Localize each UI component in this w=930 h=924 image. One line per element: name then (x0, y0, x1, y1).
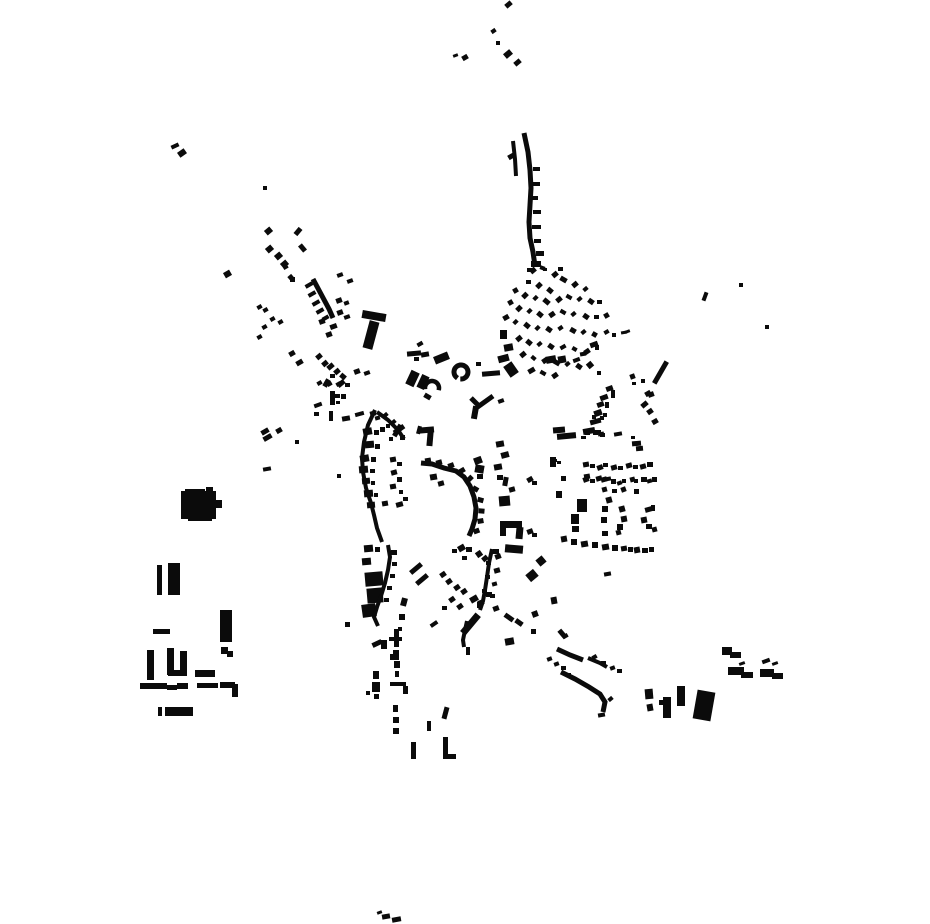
building-footprint (400, 597, 408, 606)
building-footprint (430, 473, 438, 480)
building-footprint (492, 605, 499, 612)
building-footprint (647, 478, 653, 483)
building-footprint (439, 571, 447, 579)
building-footprint (329, 323, 337, 330)
building-footprint (461, 54, 469, 61)
building-footprint (399, 490, 403, 494)
building-footprint (433, 351, 450, 364)
building-footprint (364, 571, 383, 587)
building-footprint (618, 505, 625, 512)
building-footprint (390, 682, 406, 686)
building-footprint (499, 496, 511, 507)
building-footprint (605, 402, 609, 408)
building-footprint (375, 547, 380, 552)
building-footprint (395, 671, 399, 677)
building-footprint (620, 486, 626, 492)
building-footprint (762, 658, 771, 664)
building-footprint (393, 717, 399, 723)
building-footprint (597, 300, 602, 304)
building-footprint (602, 506, 608, 512)
building-footprint (494, 553, 501, 560)
building-footprint (523, 322, 531, 330)
building-footprint (625, 462, 632, 468)
building-footprint (603, 329, 609, 335)
building-footprint (646, 524, 652, 529)
building-footprint (598, 712, 606, 717)
building-footprint (559, 309, 566, 315)
building-footprint (571, 346, 577, 352)
building-footprint (374, 430, 379, 435)
building-footprint (414, 357, 419, 361)
building-footprint (478, 508, 484, 514)
building-footprint (197, 683, 218, 688)
building-footprint (580, 329, 586, 335)
building-footprint (482, 370, 500, 377)
building-footprint (614, 431, 623, 436)
street-row (513, 141, 516, 176)
building-footprint (561, 666, 566, 670)
building-footprint (612, 333, 616, 337)
building-footprint (416, 341, 423, 347)
building-footprint (493, 549, 499, 554)
building-footprint (452, 549, 457, 553)
building-footprint (536, 251, 544, 256)
building-footprint (315, 353, 323, 361)
building-footprint (392, 916, 402, 922)
building-footprint (295, 440, 299, 444)
building-footprint (534, 325, 540, 331)
building-footprint (188, 517, 212, 521)
building-footprint (474, 464, 484, 473)
building-footprint (634, 547, 641, 554)
building-footprint (542, 297, 551, 305)
building-footprint (380, 427, 385, 432)
building-footprint (651, 505, 655, 511)
building-footprint (651, 418, 659, 425)
building-footprint (548, 311, 556, 319)
building-footprint (256, 304, 262, 310)
building-footprint (545, 326, 553, 334)
building-footprint (609, 665, 615, 670)
building-footprint (497, 398, 504, 404)
building-footprint (371, 481, 375, 485)
building-footprint (256, 334, 262, 340)
building-footprint (607, 696, 613, 702)
building-footprint (437, 480, 444, 486)
building-footprint (409, 562, 423, 575)
building-footprint (365, 441, 375, 449)
building-footprint (262, 307, 268, 313)
building-footprint (553, 426, 565, 433)
building-footprint (616, 480, 622, 485)
building-footprint (342, 415, 351, 421)
building-footprint (632, 382, 636, 385)
building-footprint (371, 639, 382, 648)
building-footprint (561, 536, 568, 543)
building-footprint (447, 754, 456, 759)
building-footprint (330, 391, 335, 405)
building-footprint (512, 319, 518, 325)
building-footprint (595, 345, 599, 350)
building-footprint (611, 390, 615, 398)
building-footprint (395, 501, 403, 508)
building-footprint (493, 567, 500, 573)
building-footprint (153, 629, 170, 634)
building-footprint (557, 355, 566, 363)
building-footprint (500, 330, 507, 339)
building-footprint (649, 547, 654, 552)
building-footprint (277, 319, 283, 325)
map-canvas (0, 0, 930, 924)
building-footprint (157, 565, 162, 595)
building-footprint (502, 477, 508, 487)
arc-building (425, 381, 439, 390)
building-footprint (633, 465, 638, 469)
building-footprint (625, 329, 631, 334)
building-footprint (576, 296, 582, 302)
building-footprint (582, 313, 590, 321)
building-footprint (533, 167, 540, 171)
building-footprint (663, 697, 671, 718)
building-footprint (546, 656, 552, 661)
building-footprint (374, 694, 379, 699)
building-footprint (355, 411, 365, 417)
building-footprint (640, 400, 649, 408)
building-footprint (462, 556, 467, 560)
building-footprint (325, 331, 332, 338)
building-footprint (269, 316, 275, 322)
building-footprint (553, 459, 557, 462)
building-footprint (561, 476, 566, 481)
building-footprint (591, 331, 598, 338)
building-footprint (621, 516, 628, 523)
building-footprint (503, 343, 513, 351)
building-footprint (587, 298, 595, 306)
building-footprint (559, 276, 568, 284)
building-footprint (504, 0, 513, 8)
building-footprint (765, 325, 769, 329)
building-footprint (448, 596, 456, 604)
building-footprint (641, 379, 645, 383)
building-footprint (503, 49, 513, 59)
building-footprint (615, 529, 621, 535)
building-footprint (263, 186, 267, 190)
building-footprint (181, 491, 216, 519)
building-footprint (288, 350, 296, 357)
building-footprint (423, 393, 432, 401)
figure-ground-map (0, 0, 930, 924)
building-footprint (466, 647, 470, 651)
building-footprint (316, 380, 322, 386)
building-footprint (167, 685, 177, 690)
building-footprint (651, 526, 657, 532)
building-footprint (345, 383, 350, 387)
building-footprint (636, 446, 643, 452)
building-footprint (590, 479, 595, 483)
building-footprint (618, 466, 623, 470)
building-footprint (546, 287, 554, 295)
building-footprint (760, 669, 774, 677)
building-footprint (336, 272, 343, 278)
building-footprint (533, 182, 540, 186)
building-footprint (503, 361, 519, 377)
building-footprint (631, 436, 635, 439)
building-footprint (641, 477, 647, 482)
building-footprint (507, 299, 514, 306)
building-footprint (261, 324, 267, 330)
building-footprint (772, 661, 779, 666)
building-footprint (593, 430, 598, 435)
building-footprint (547, 343, 555, 351)
building-footprint (384, 598, 389, 602)
building-footprint (583, 462, 590, 468)
building-footprint (274, 251, 283, 260)
building-footprint (730, 652, 741, 658)
building-footprint (557, 325, 563, 331)
arc-building (454, 365, 468, 379)
building-footprint (393, 650, 399, 658)
building-footprint (526, 308, 532, 314)
building-footprint (335, 394, 340, 398)
building-footprint (582, 286, 588, 292)
building-footprint (534, 239, 541, 243)
building-footprint (466, 651, 470, 655)
building-footprint (553, 661, 559, 666)
building-footprint (371, 457, 376, 462)
building-footprint (220, 610, 232, 642)
building-footprint (147, 650, 154, 680)
building-footprint (363, 320, 380, 350)
building-footprint (477, 518, 484, 524)
building-footprint (497, 475, 503, 480)
building-footprint (581, 436, 586, 439)
building-footprint (374, 493, 378, 497)
building-footprint (370, 469, 375, 473)
building-footprint (550, 597, 557, 605)
building-footprint (519, 351, 527, 359)
building-footprint (456, 603, 464, 611)
building-footprint (531, 629, 536, 634)
building-footprint (403, 497, 408, 501)
building-footprint (652, 360, 669, 384)
building-footprint (382, 913, 391, 919)
building-footprint (421, 351, 430, 357)
building-footprint (505, 544, 524, 554)
building-footprint (600, 433, 605, 437)
building-footprint (372, 682, 380, 692)
building-footprint (382, 501, 389, 507)
building-footprint (389, 637, 402, 641)
building-footprint (206, 487, 213, 493)
building-footprint (490, 28, 496, 34)
building-footprint (536, 341, 542, 347)
building-footprint (390, 574, 395, 578)
building-footprint (263, 466, 272, 471)
building-footprint (610, 464, 617, 470)
building-footprint (646, 704, 653, 712)
building-footprint (601, 517, 607, 523)
building-footprint (533, 210, 541, 214)
building-footprint (647, 462, 653, 467)
building-footprint (195, 670, 215, 677)
building-footprint (298, 243, 307, 252)
building-footprint (602, 531, 608, 536)
building-footprint (394, 661, 400, 668)
building-footprint (290, 277, 295, 282)
building-footprint (473, 456, 483, 465)
building-footprint (415, 573, 429, 586)
building-footprint (215, 500, 222, 508)
building-footprint (486, 592, 492, 597)
building-footprint (381, 640, 387, 649)
street-row (557, 649, 583, 660)
building-footprint (581, 540, 589, 547)
building-footprint (346, 278, 353, 284)
building-footprint (442, 606, 447, 610)
building-footprint (337, 474, 341, 478)
building-footprint (336, 309, 343, 316)
building-footprint (497, 354, 509, 364)
building-footprint (532, 225, 541, 229)
building-footprint (577, 499, 587, 512)
building-footprint (539, 370, 546, 376)
building-footprint (536, 311, 544, 319)
building-footprint (427, 721, 431, 731)
building-footprint (512, 287, 519, 294)
building-footprint (617, 524, 623, 530)
building-footprint (659, 700, 664, 705)
building-footprint (596, 464, 603, 471)
building-footprint (392, 562, 397, 566)
building-footprint (596, 401, 604, 408)
building-footprint (502, 314, 510, 321)
building-footprint (612, 489, 617, 493)
building-footprint (397, 462, 402, 466)
building-footprint (364, 545, 374, 553)
building-footprint (330, 374, 335, 378)
building-footprint (363, 370, 370, 376)
building-footprint (477, 474, 483, 479)
building-footprint (475, 550, 483, 558)
building-footprint (677, 686, 685, 706)
building-footprint (390, 484, 397, 490)
building-footprint (565, 294, 572, 300)
building-footprint (314, 402, 323, 408)
building-footprint (604, 571, 612, 576)
building-footprint (513, 58, 522, 66)
building-footprint (634, 479, 638, 483)
building-footprint (652, 477, 657, 482)
building-footprint (603, 312, 610, 319)
building-footprint (177, 148, 187, 158)
street-row (421, 463, 476, 536)
building-footprint (308, 290, 317, 297)
building-footprint (558, 267, 563, 271)
building-footprint (500, 528, 506, 536)
building-footprint (530, 355, 536, 361)
building-footprint (399, 614, 405, 620)
building-footprint (527, 367, 536, 375)
building-footprint (494, 463, 503, 470)
building-footprint (532, 481, 537, 485)
building-footprint (586, 361, 594, 369)
building-footprint (611, 479, 616, 484)
building-footprint (398, 627, 402, 631)
building-footprint (393, 728, 399, 734)
building-footprint (316, 307, 325, 314)
building-footprint (602, 543, 610, 550)
building-footprint (514, 618, 523, 627)
building-footprint (335, 297, 342, 304)
building-footprint (622, 479, 626, 483)
building-footprint (445, 578, 453, 586)
building-footprint (532, 295, 538, 301)
building-footprint (345, 622, 350, 627)
building-footprint (772, 673, 783, 679)
building-footprint (329, 411, 333, 421)
building-footprint (343, 314, 350, 320)
building-footprint (223, 270, 232, 279)
building-footprint (264, 226, 273, 235)
building-footprint (741, 672, 753, 678)
building-footprint (457, 544, 466, 553)
building-footprint (702, 292, 709, 302)
building-footprint (353, 368, 360, 375)
building-footprint (397, 477, 402, 482)
building-footprint (180, 651, 187, 672)
building-footprint (515, 305, 523, 313)
building-footprint (496, 440, 505, 447)
building-footprint (158, 707, 162, 716)
building-footprint (532, 533, 537, 537)
building-footprint (168, 670, 187, 676)
building-footprint (693, 690, 716, 722)
building-footprint (312, 299, 321, 306)
building-footprint (571, 514, 579, 524)
building-footprint (526, 280, 531, 284)
building-footprint (496, 41, 500, 45)
building-footprint (373, 671, 379, 679)
building-footprint (361, 310, 386, 322)
building-footprint (391, 550, 397, 555)
building-footprint (403, 686, 408, 694)
building-footprint (411, 742, 416, 759)
building-footprint (504, 637, 514, 645)
building-footprint (407, 350, 421, 356)
building-footprint (185, 489, 205, 494)
building-footprint (476, 362, 481, 366)
building-footprint (515, 527, 523, 540)
building-footprint (599, 394, 608, 401)
building-footprint (343, 300, 349, 305)
building-footprint (571, 539, 577, 545)
building-footprint (642, 548, 648, 553)
building-footprint (390, 457, 397, 463)
building-footprint (569, 327, 577, 334)
building-footprint (275, 427, 283, 434)
building-footprint (634, 489, 639, 494)
building-footprint (557, 461, 561, 464)
building-footprint (171, 142, 180, 149)
building-footprint (617, 669, 622, 673)
building-footprint (377, 910, 383, 915)
building-footprint (585, 431, 590, 435)
building-footprint (739, 661, 746, 666)
street-row (362, 410, 382, 542)
building-footprint (341, 394, 346, 399)
building-footprint (362, 558, 372, 566)
building-footprint (592, 542, 598, 548)
